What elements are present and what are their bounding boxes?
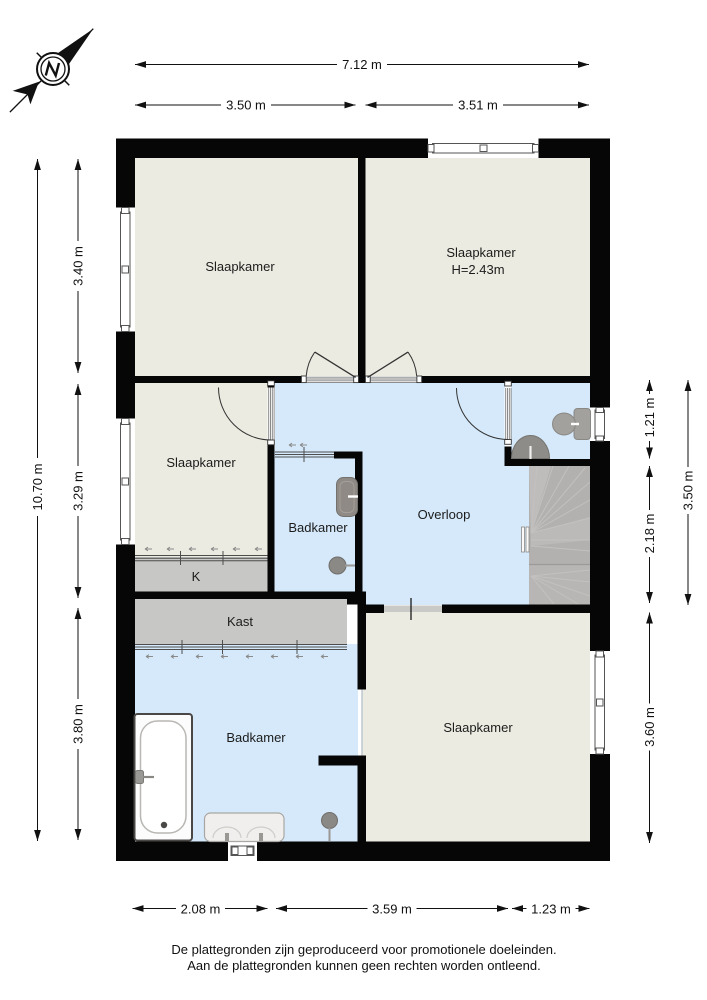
- svg-text:2.18 m: 2.18 m: [642, 514, 657, 554]
- svg-text:3.50 m: 3.50 m: [226, 98, 266, 113]
- svg-text:De plattegronden zijn geproduc: De plattegronden zijn geproduceerd voor …: [171, 942, 556, 957]
- svg-text:Slaapkamer: Slaapkamer: [205, 259, 275, 274]
- svg-text:Slaapkamer: Slaapkamer: [446, 245, 516, 260]
- svg-text:7.12 m: 7.12 m: [342, 57, 382, 72]
- svg-text:3.59 m: 3.59 m: [372, 902, 412, 917]
- svg-text:K: K: [192, 569, 201, 584]
- svg-text:1.21 m: 1.21 m: [642, 398, 657, 438]
- svg-text:H=2.43m: H=2.43m: [451, 262, 504, 277]
- svg-text:3.80 m: 3.80 m: [71, 704, 86, 744]
- svg-text:1.23 m: 1.23 m: [531, 902, 571, 917]
- svg-text:3.50 m: 3.50 m: [681, 471, 696, 511]
- svg-text:Overloop: Overloop: [418, 507, 471, 522]
- svg-text:Badkamer: Badkamer: [288, 520, 348, 535]
- svg-text:Slaapkamer: Slaapkamer: [443, 720, 513, 735]
- svg-text:Aan de plattegronden kunnen ge: Aan de plattegronden kunnen geen rechten…: [187, 958, 540, 973]
- svg-text:Slaapkamer: Slaapkamer: [166, 455, 236, 470]
- svg-text:2.08 m: 2.08 m: [181, 902, 221, 917]
- svg-text:3.51 m: 3.51 m: [458, 98, 498, 113]
- svg-text:3.40 m: 3.40 m: [71, 246, 86, 286]
- svg-text:10.70 m: 10.70 m: [30, 464, 45, 511]
- svg-text:3.29 m: 3.29 m: [71, 471, 86, 511]
- svg-text:3.60 m: 3.60 m: [642, 707, 657, 747]
- svg-text:Kast: Kast: [227, 614, 253, 629]
- svg-text:Badkamer: Badkamer: [226, 730, 286, 745]
